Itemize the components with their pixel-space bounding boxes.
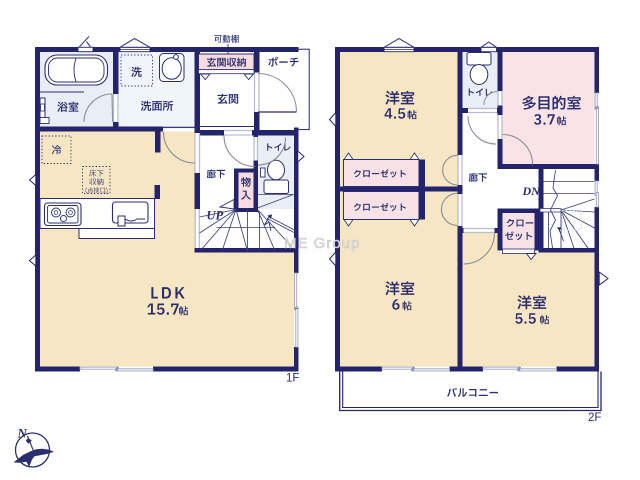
svg-text:UP: UP [207, 209, 224, 223]
svg-text:DN: DN [522, 184, 542, 198]
svg-text:N: N [17, 426, 28, 441]
svg-text:1F: 1F [286, 373, 299, 385]
svg-text:ME Group: ME Group [284, 235, 360, 252]
svg-text:2F: 2F [588, 412, 601, 424]
